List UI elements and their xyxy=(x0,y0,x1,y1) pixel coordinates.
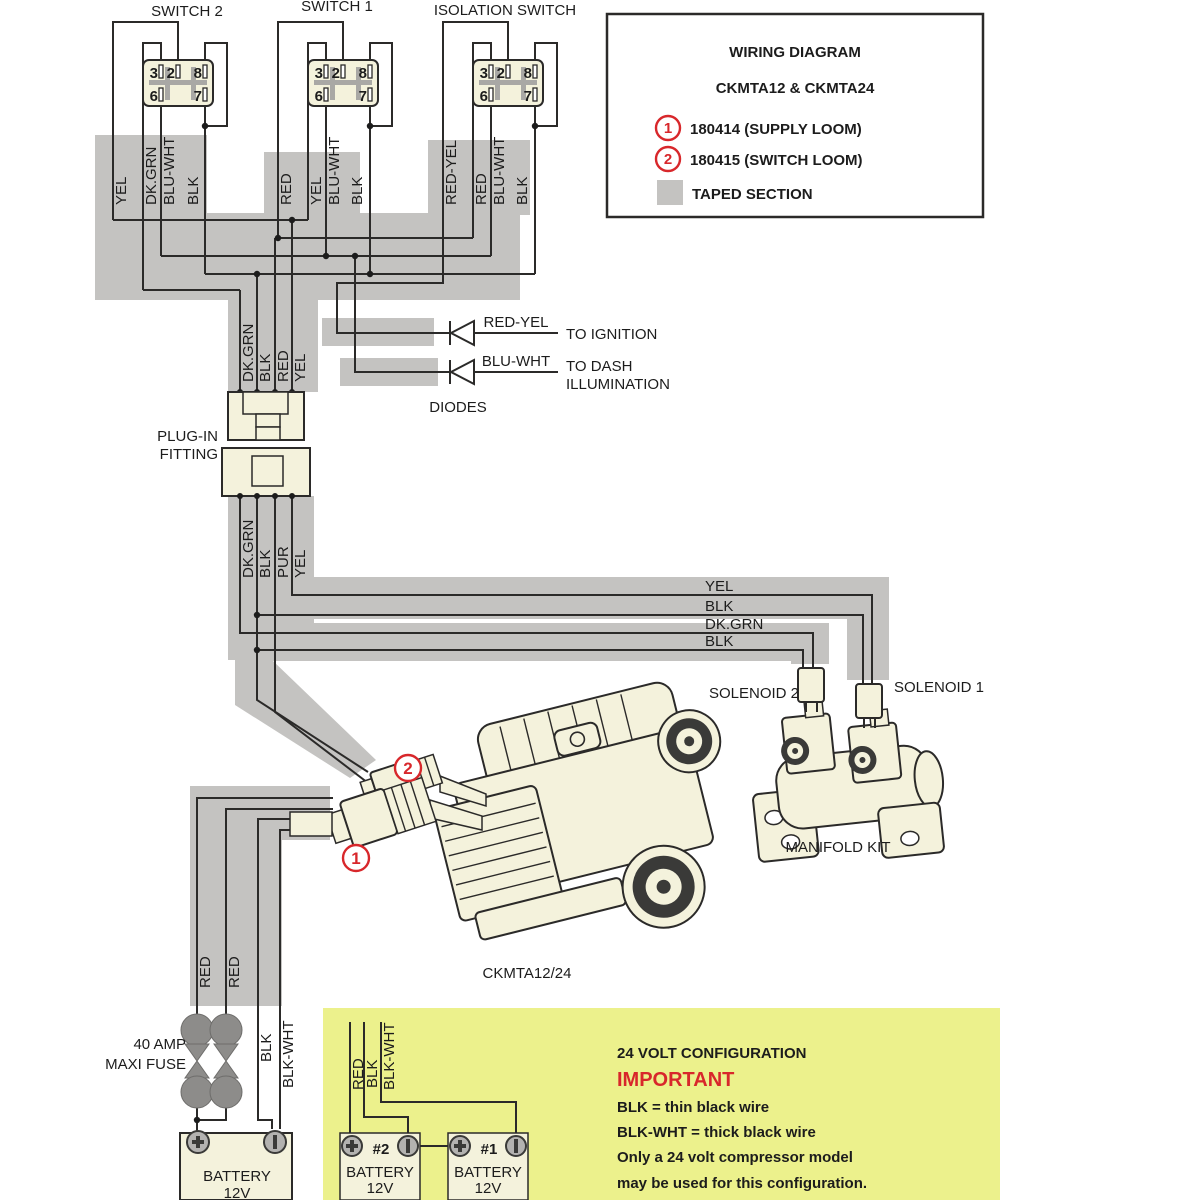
manifold-caption: MANIFOLD KIT xyxy=(785,839,890,856)
compressor-caption: CKMTA12/24 xyxy=(483,965,572,982)
pin-label: 2 xyxy=(497,65,505,82)
switch2-connector: 3 2 8 6 7 xyxy=(143,60,213,106)
wire-label: RED xyxy=(278,173,295,205)
diodes-caption: DIODES xyxy=(429,399,487,416)
diode2-target-2: ILLUMINATION xyxy=(566,376,670,393)
battery-name: BATTERY xyxy=(203,1168,271,1185)
diagram-subtitle: CKMTA12 & CKMTA24 xyxy=(716,80,875,97)
plug-in-fitting-label-2: FITTING xyxy=(160,446,218,463)
wire-label: RED xyxy=(197,956,214,988)
switch2-label: SWITCH 2 xyxy=(151,3,223,20)
wire-label: RED xyxy=(226,956,243,988)
diode1-wire-label: RED-YEL xyxy=(483,314,548,331)
battery-1: #1 BATTERY 12V xyxy=(448,1133,528,1200)
diode2-target-1: TO DASH xyxy=(566,358,632,375)
wire-label: BLK xyxy=(257,354,274,382)
pin-label: 7 xyxy=(194,88,202,105)
pin-label: 3 xyxy=(150,65,158,82)
wire-label: BLK xyxy=(185,177,202,205)
diode1-target: TO IGNITION xyxy=(566,326,657,343)
wire-label: DK.GRN xyxy=(143,147,160,205)
config24-important: IMPORTANT xyxy=(617,1069,734,1091)
pin-label: 8 xyxy=(524,65,532,82)
solenoid1-label: SOLENOID 1 xyxy=(894,679,984,696)
main-battery: BATTERY 12V xyxy=(180,1131,292,1200)
wire-label: YEL xyxy=(292,550,309,578)
diode2-wire-label: BLU-WHT xyxy=(482,353,550,370)
wire-label: BLK xyxy=(705,598,733,615)
battery-name: BATTERY xyxy=(346,1164,414,1181)
battery-voltage: 12V xyxy=(475,1180,502,1197)
wire-label: DK.GRN xyxy=(240,324,257,382)
wire-label: DK.GRN xyxy=(240,520,257,578)
inline-connector xyxy=(290,812,332,836)
pin-label: 2 xyxy=(332,65,340,82)
fuse-label-2: MAXI FUSE xyxy=(105,1056,186,1073)
wire-label: BLK xyxy=(514,177,531,205)
wire-label: DK.GRN xyxy=(705,616,763,633)
config24-line2: BLK-WHT = thick black wire xyxy=(617,1124,816,1141)
switch1-connector: 3 2 8 6 7 xyxy=(308,60,378,106)
wire-label: RED xyxy=(275,350,292,382)
title-block: WIRING DIAGRAM CKMTA12 & CKMTA24 1 18041… xyxy=(607,14,983,217)
pin-label: 6 xyxy=(315,88,323,105)
pin-label: 6 xyxy=(480,88,488,105)
switch-loom-marker: 2 xyxy=(403,759,412,778)
diagram-title: WIRING DIAGRAM xyxy=(729,44,861,61)
wire-label: BLU-WHT xyxy=(326,137,343,205)
wire-label: YEL xyxy=(292,354,309,382)
solenoid1-plug xyxy=(856,684,882,718)
wire-label: YEL xyxy=(705,578,733,595)
pin-label: 3 xyxy=(480,65,488,82)
supply-loom-marker: 1 xyxy=(351,849,360,868)
wire-label: YEL xyxy=(113,177,130,205)
pin-label: 3 xyxy=(315,65,323,82)
switch1-label: SWITCH 1 xyxy=(301,0,373,15)
battery2-number: #2 xyxy=(373,1141,390,1158)
config24-line4: may be used for this configuration. xyxy=(617,1175,867,1192)
battery-voltage: 12V xyxy=(367,1180,394,1197)
pin-label: 7 xyxy=(524,88,532,105)
legend-item2: 180415 (SWITCH LOOM) xyxy=(690,152,863,169)
wire-label: BLK xyxy=(349,177,366,205)
legend-marker2: 2 xyxy=(664,151,672,168)
wire-label: BLK-WHT xyxy=(381,1023,398,1091)
pin-label: 2 xyxy=(167,65,175,82)
battery-name: BATTERY xyxy=(454,1164,522,1181)
battery1-number: #1 xyxy=(481,1141,498,1158)
wire-label: YEL xyxy=(308,177,325,205)
pin-label: 7 xyxy=(359,88,367,105)
legend-taped-label: TAPED SECTION xyxy=(692,186,813,203)
pin-label: 6 xyxy=(150,88,158,105)
solenoid2-plug xyxy=(798,668,824,702)
pin-label: 8 xyxy=(359,65,367,82)
config24-line1: BLK = thin black wire xyxy=(617,1099,769,1116)
plug-in-fitting-label-1: PLUG-IN xyxy=(157,428,218,445)
legend-item1: 180414 (SUPPLY LOOM) xyxy=(690,121,862,138)
isolation-switch-label: ISOLATION SWITCH xyxy=(434,2,576,19)
battery-voltage: 12V xyxy=(224,1185,251,1200)
wiring-diagram-canvas: 3 2 8 6 7 3 2 8 6 7 3 2 8 6 7 SWITCH 2 S… xyxy=(0,0,1200,1200)
isolation-switch-connector: 3 2 8 6 7 xyxy=(473,60,543,106)
fuse-label-1: 40 AMP xyxy=(133,1036,186,1053)
solenoid2-label: SOLENOID 2 xyxy=(709,685,799,702)
wire-label: BLK xyxy=(257,550,274,578)
legend-marker1: 1 xyxy=(664,120,672,137)
wire-label: BLK-WHT xyxy=(280,1021,297,1089)
battery-2: #2 BATTERY 12V xyxy=(340,1133,420,1200)
wire-label: BLU-WHT xyxy=(491,137,508,205)
wire-label: RED xyxy=(473,173,490,205)
config24-line3: Only a 24 volt compressor model xyxy=(617,1149,853,1166)
config24-title: 24 VOLT CONFIGURATION xyxy=(617,1045,806,1062)
wire-label: BLK xyxy=(705,633,733,650)
pin-label: 8 xyxy=(194,65,202,82)
wire-label: BLK xyxy=(258,1034,275,1062)
wire-label: BLU-WHT xyxy=(161,137,178,205)
wire-label: BLK xyxy=(364,1060,381,1088)
taped-section-swatch xyxy=(657,180,683,205)
wire-label: PUR xyxy=(275,546,292,578)
wire-label: RED-YEL xyxy=(443,140,460,205)
